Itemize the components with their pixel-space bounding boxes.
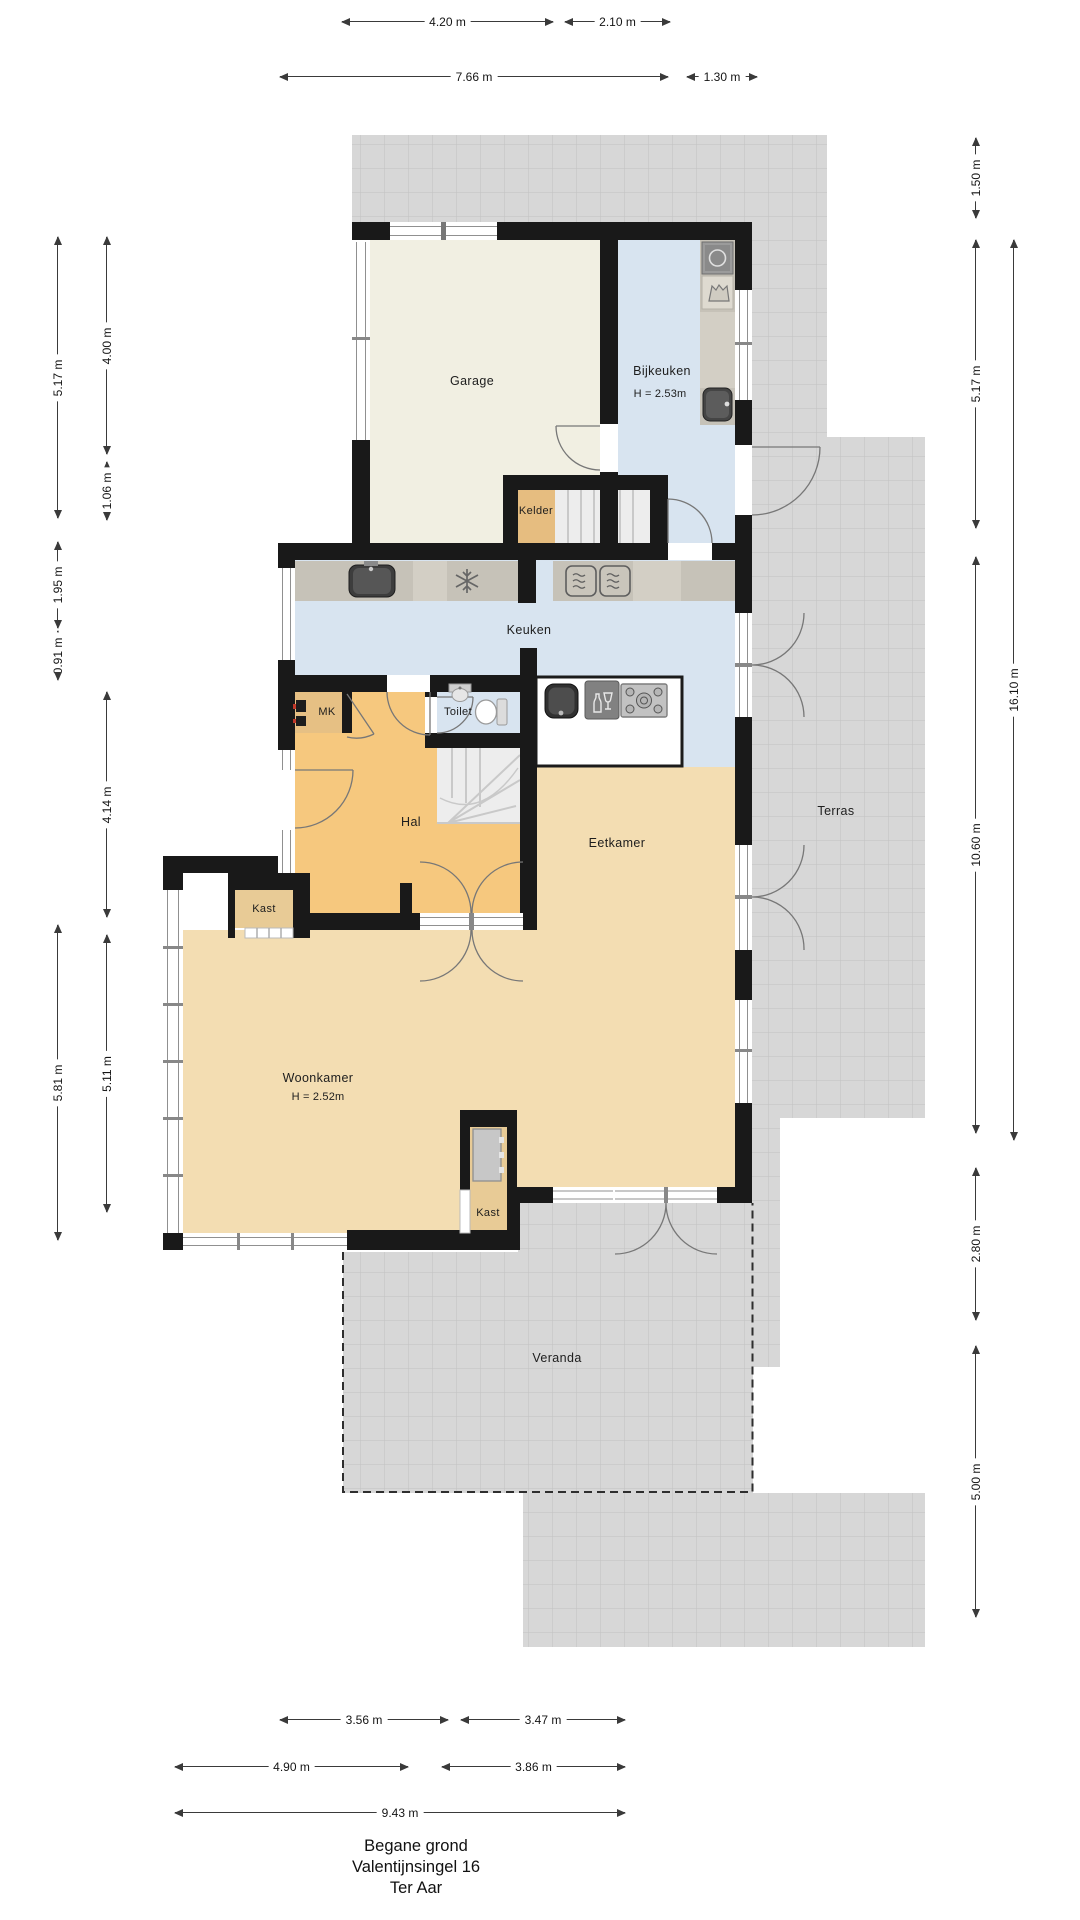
eetkamer-floor [537,767,735,1187]
dim-left-6: 4.14 m [106,692,107,917]
room-label-garage: Garage [450,374,494,388]
dim-bottom-2: 3.47 m [461,1719,625,1720]
window-keuken-west [278,568,295,660]
dim-top-house-width: 7.66 m [280,76,668,77]
kast-eetkamer-door [460,1190,470,1233]
dim-left-5: 0.91 m [57,631,58,680]
dim-right-1: 1.50 m [975,138,976,218]
french-door-eetkamer-terras-2 [735,845,752,950]
island-sink-icon [545,684,578,718]
washing-machine-icon [702,242,733,274]
window-garage-west [352,242,370,440]
gas-hob-icon [621,684,667,717]
dim-left-4: 1.95 m [57,542,58,628]
front-door-opening [278,770,295,830]
title-address: Valentijnsingel 16 [352,1857,480,1878]
laundry-basket-icon [702,276,733,309]
dim-right-3: 10.60 m [975,557,976,1133]
door-opening-bijkeuken-terras [735,445,752,515]
utility-sink-icon [703,388,732,421]
room-label-kelder: Kelder [519,505,553,517]
door-opening-bijkeuken-keuken [668,543,712,560]
window-hal-west-upper [278,750,295,770]
room-label-keuken: Keuken [507,623,552,637]
oven-icon-1 [566,566,596,596]
dishwasher-icon [585,681,619,719]
window-bijkeuken-east [735,290,752,400]
french-door-hal-woonkamer [420,913,523,930]
room-height-bijkeuken: H = 2.53m [634,388,687,400]
dim-left-8: 5.11 m [106,935,107,1212]
room-label-bijkeuken: Bijkeuken [633,364,691,378]
dim-bottom-1: 3.56 m [280,1719,448,1720]
door-opening-toilet [425,697,437,733]
window-eetkamer-east [735,1000,752,1103]
kast-cabinet-icon [473,1129,504,1181]
window-hal-west-lower [278,830,295,873]
dim-left-2: 4.00 m [106,237,107,454]
winder-stairs-icon [437,743,520,823]
room-label-kast-eetkamer: Kast [476,1207,500,1219]
dim-top-bijkeuken-width: 2.10 m [565,21,670,22]
kitchen-island [536,677,682,766]
room-label-woonkamer: Woonkamer [283,1071,354,1085]
room-label-mk: MK [318,706,335,718]
room-label-hal: Hal [401,815,421,829]
keuken-counter [287,561,735,601]
room-label-eetkamer: Eetkamer [589,836,646,850]
floorplan-drawing [0,0,1080,1920]
room-label-terras: Terras [817,804,854,818]
floorplan-page: Garage Bijkeuken H = 2.53m Kelder Keuken… [0,0,1080,1920]
dim-right-total: 16.10 m [1013,240,1014,1140]
bijkeuken-counter [700,240,735,425]
window-eetkamer-south [553,1187,613,1203]
dim-bottom-4: 3.86 m [442,1766,625,1767]
title-city: Ter Aar [352,1878,480,1899]
door-opening-keuken-hal [387,675,430,692]
dim-left-1: 5.17 m [57,237,58,518]
open-floor-join [518,930,537,1187]
dim-top-terras-width: 1.30 m [687,76,757,77]
dim-top-garage-width: 4.20 m [342,21,553,22]
french-door-eetkamer-terras-1 [735,613,752,717]
dim-left-7: 5.81 m [57,925,58,1240]
dim-bottom-total: 9.43 m [175,1812,625,1813]
window-woonkamer-west [163,890,183,1233]
dim-bottom-3: 4.90 m [175,1766,408,1767]
kitchen-sink-icon [349,561,395,597]
room-label-toilet: Toilet [444,706,472,718]
dim-right-4: 2.80 m [975,1168,976,1320]
kast-hal-doors [245,928,293,938]
french-door-eetkamer-veranda [615,1187,717,1203]
room-label-veranda: Veranda [532,1351,581,1365]
door-opening-garage-bijkeuken [600,424,618,472]
toilet-bowl-icon [476,699,508,725]
title-block: Begane grond Valentijnsingel 16 Ter Aar [352,1836,480,1899]
window-woonkamer-south [183,1233,347,1250]
window-garage-north [390,222,497,240]
room-label-kast-hal: Kast [252,903,276,915]
title-floor: Begane grond [352,1836,480,1857]
dim-left-3: 1.06 m [106,462,107,520]
dim-right-2: 5.17 m [975,240,976,528]
dim-right-5: 5.00 m [975,1346,976,1617]
room-height-woonkamer: H = 2.52m [292,1091,345,1103]
oven-icon-2 [600,566,630,596]
